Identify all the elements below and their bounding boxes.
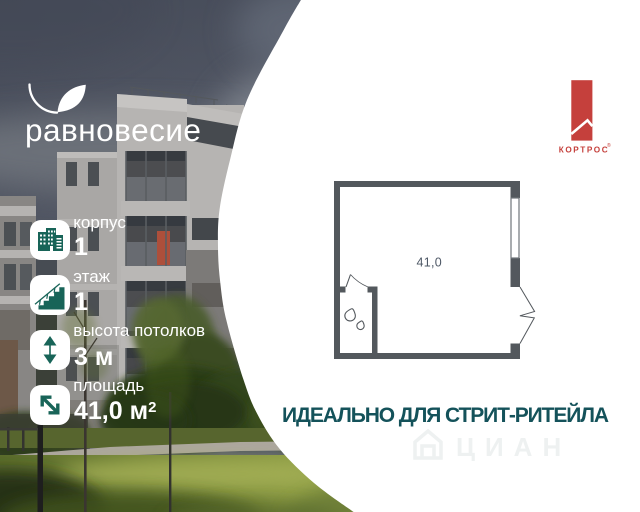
svg-text:ЦИАН: ЦИАН xyxy=(456,432,571,461)
svg-text:41,0: 41,0 xyxy=(417,256,443,270)
svg-text:®: ® xyxy=(607,142,611,149)
svg-text:КОРТРОС: КОРТРОС xyxy=(559,146,610,155)
